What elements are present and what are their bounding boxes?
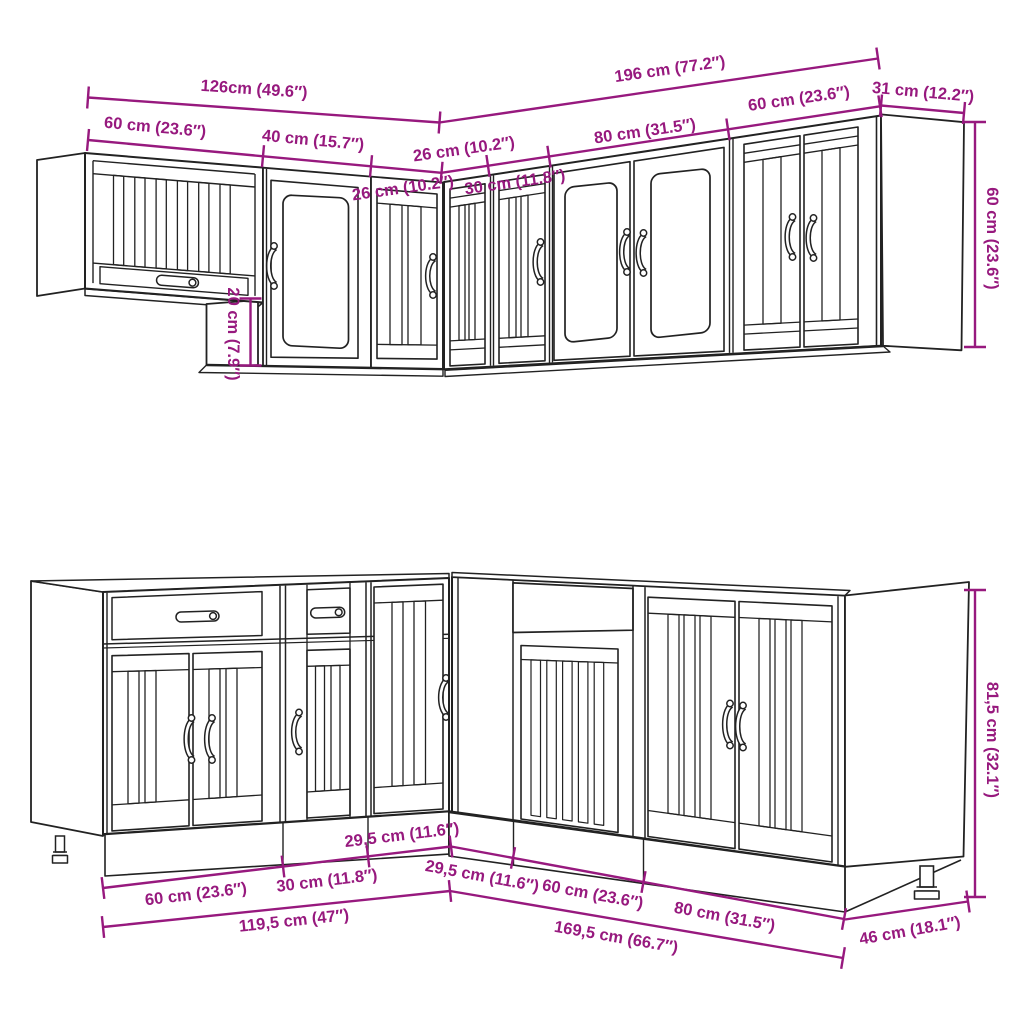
svg-text:81,5 cm (32.1″): 81,5 cm (32.1″)	[983, 682, 1001, 798]
svg-text:60 cm (23.6″): 60 cm (23.6″)	[983, 187, 1001, 289]
svg-text:20 cm (7.9″): 20 cm (7.9″)	[224, 287, 242, 380]
